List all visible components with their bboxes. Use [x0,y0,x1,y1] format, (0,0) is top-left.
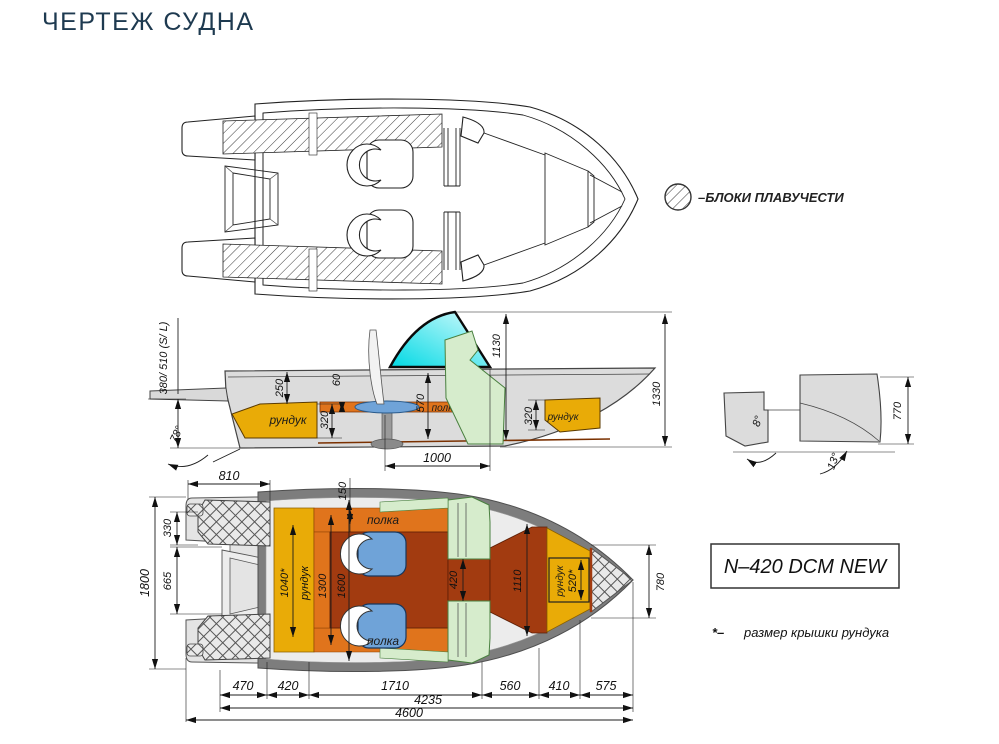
dim-beam: 1800 [138,569,152,597]
dim-mirror-height: 380/ 510 (S/ L) [158,321,170,394]
dim-cockpit-h: 570 [415,393,427,412]
dim-seg-5: 410 [549,679,570,693]
dim-stern-block-w: 810 [219,469,240,483]
dim-len-cockpit-total: 4235 [414,693,442,707]
footnote-marker: *– [712,625,724,640]
footnote-text: размер крышки рундука [743,625,889,640]
dim-stern-lid: 1040* [279,568,291,597]
buoyancy-hatch-icon [665,184,691,210]
transom-section-view: 770 8° 13° [724,374,914,474]
dim-shelf-gap: 60 [331,373,343,386]
plan-view: полка полка [138,469,667,722]
footnote: *– размер крышки рундука [712,625,889,640]
dim-overall-h: 1330 [651,381,663,406]
model-label: N–420 DCM NEW [724,556,888,578]
dim-console-gap: 420 [448,570,460,589]
dim-bow-lid: 520* [567,569,579,592]
bow-locker-label: рундук [555,564,566,597]
dim-bow-block-w: 780 [655,572,667,591]
shelf-bottom-label: полка [367,634,399,648]
drawing-page: ЧЕРТЕЖ СУДНА [0,0,999,744]
dim-len-overall: 4600 [395,706,423,720]
dim-floor-w: 1300 [317,573,329,598]
legend-label: –БЛОКИ ПЛАВУЧЕСТИ [698,190,844,205]
side-locker-left-label: рундук [268,413,307,427]
transom-hull-section [800,374,881,442]
dim-seg-6: 575 [596,679,617,693]
side-view: рундук полка рундук [148,312,672,471]
dim-seg-1: 470 [233,679,254,693]
dim-windshield-h: 1130 [491,333,503,358]
dim-table-zone-len: 1000 [423,451,451,465]
stern-locker-label: рундук [299,565,311,601]
dim-angle-keel: 13° [825,451,842,471]
dim-seg-4: 560 [500,679,521,693]
side-locker-right-label: рундук [547,412,580,423]
dim-seg-3: 1710 [381,679,409,693]
dim-transom-h: 770 [892,401,904,420]
bow-buoyancy-block [591,548,633,612]
dim-well-h: 665 [162,571,174,590]
dim-shelf-w: 150 [337,481,349,500]
dim-bow-cockpit-w: 1110 [512,569,524,593]
dim-locker-right-h: 320 [523,406,535,425]
top-plan-view [182,99,638,299]
dim-transom-angle: 78° [168,424,186,445]
dim-cockpit-w: 1600 [336,573,348,598]
model-box: N–420 DCM NEW [711,544,899,588]
boat-drawing: –БЛОКИ ПЛАВУЧЕСТИ рундук полка рундук [0,0,999,744]
dim-locker-left-h: 320 [319,410,331,429]
legend: –БЛОКИ ПЛАВУЧЕСТИ [665,184,844,210]
dim-step-h: 250 [274,378,286,398]
dim-seg-2: 420 [278,679,299,693]
dim-block-h: 330 [162,518,174,537]
shelf-top-label: полка [367,513,399,527]
